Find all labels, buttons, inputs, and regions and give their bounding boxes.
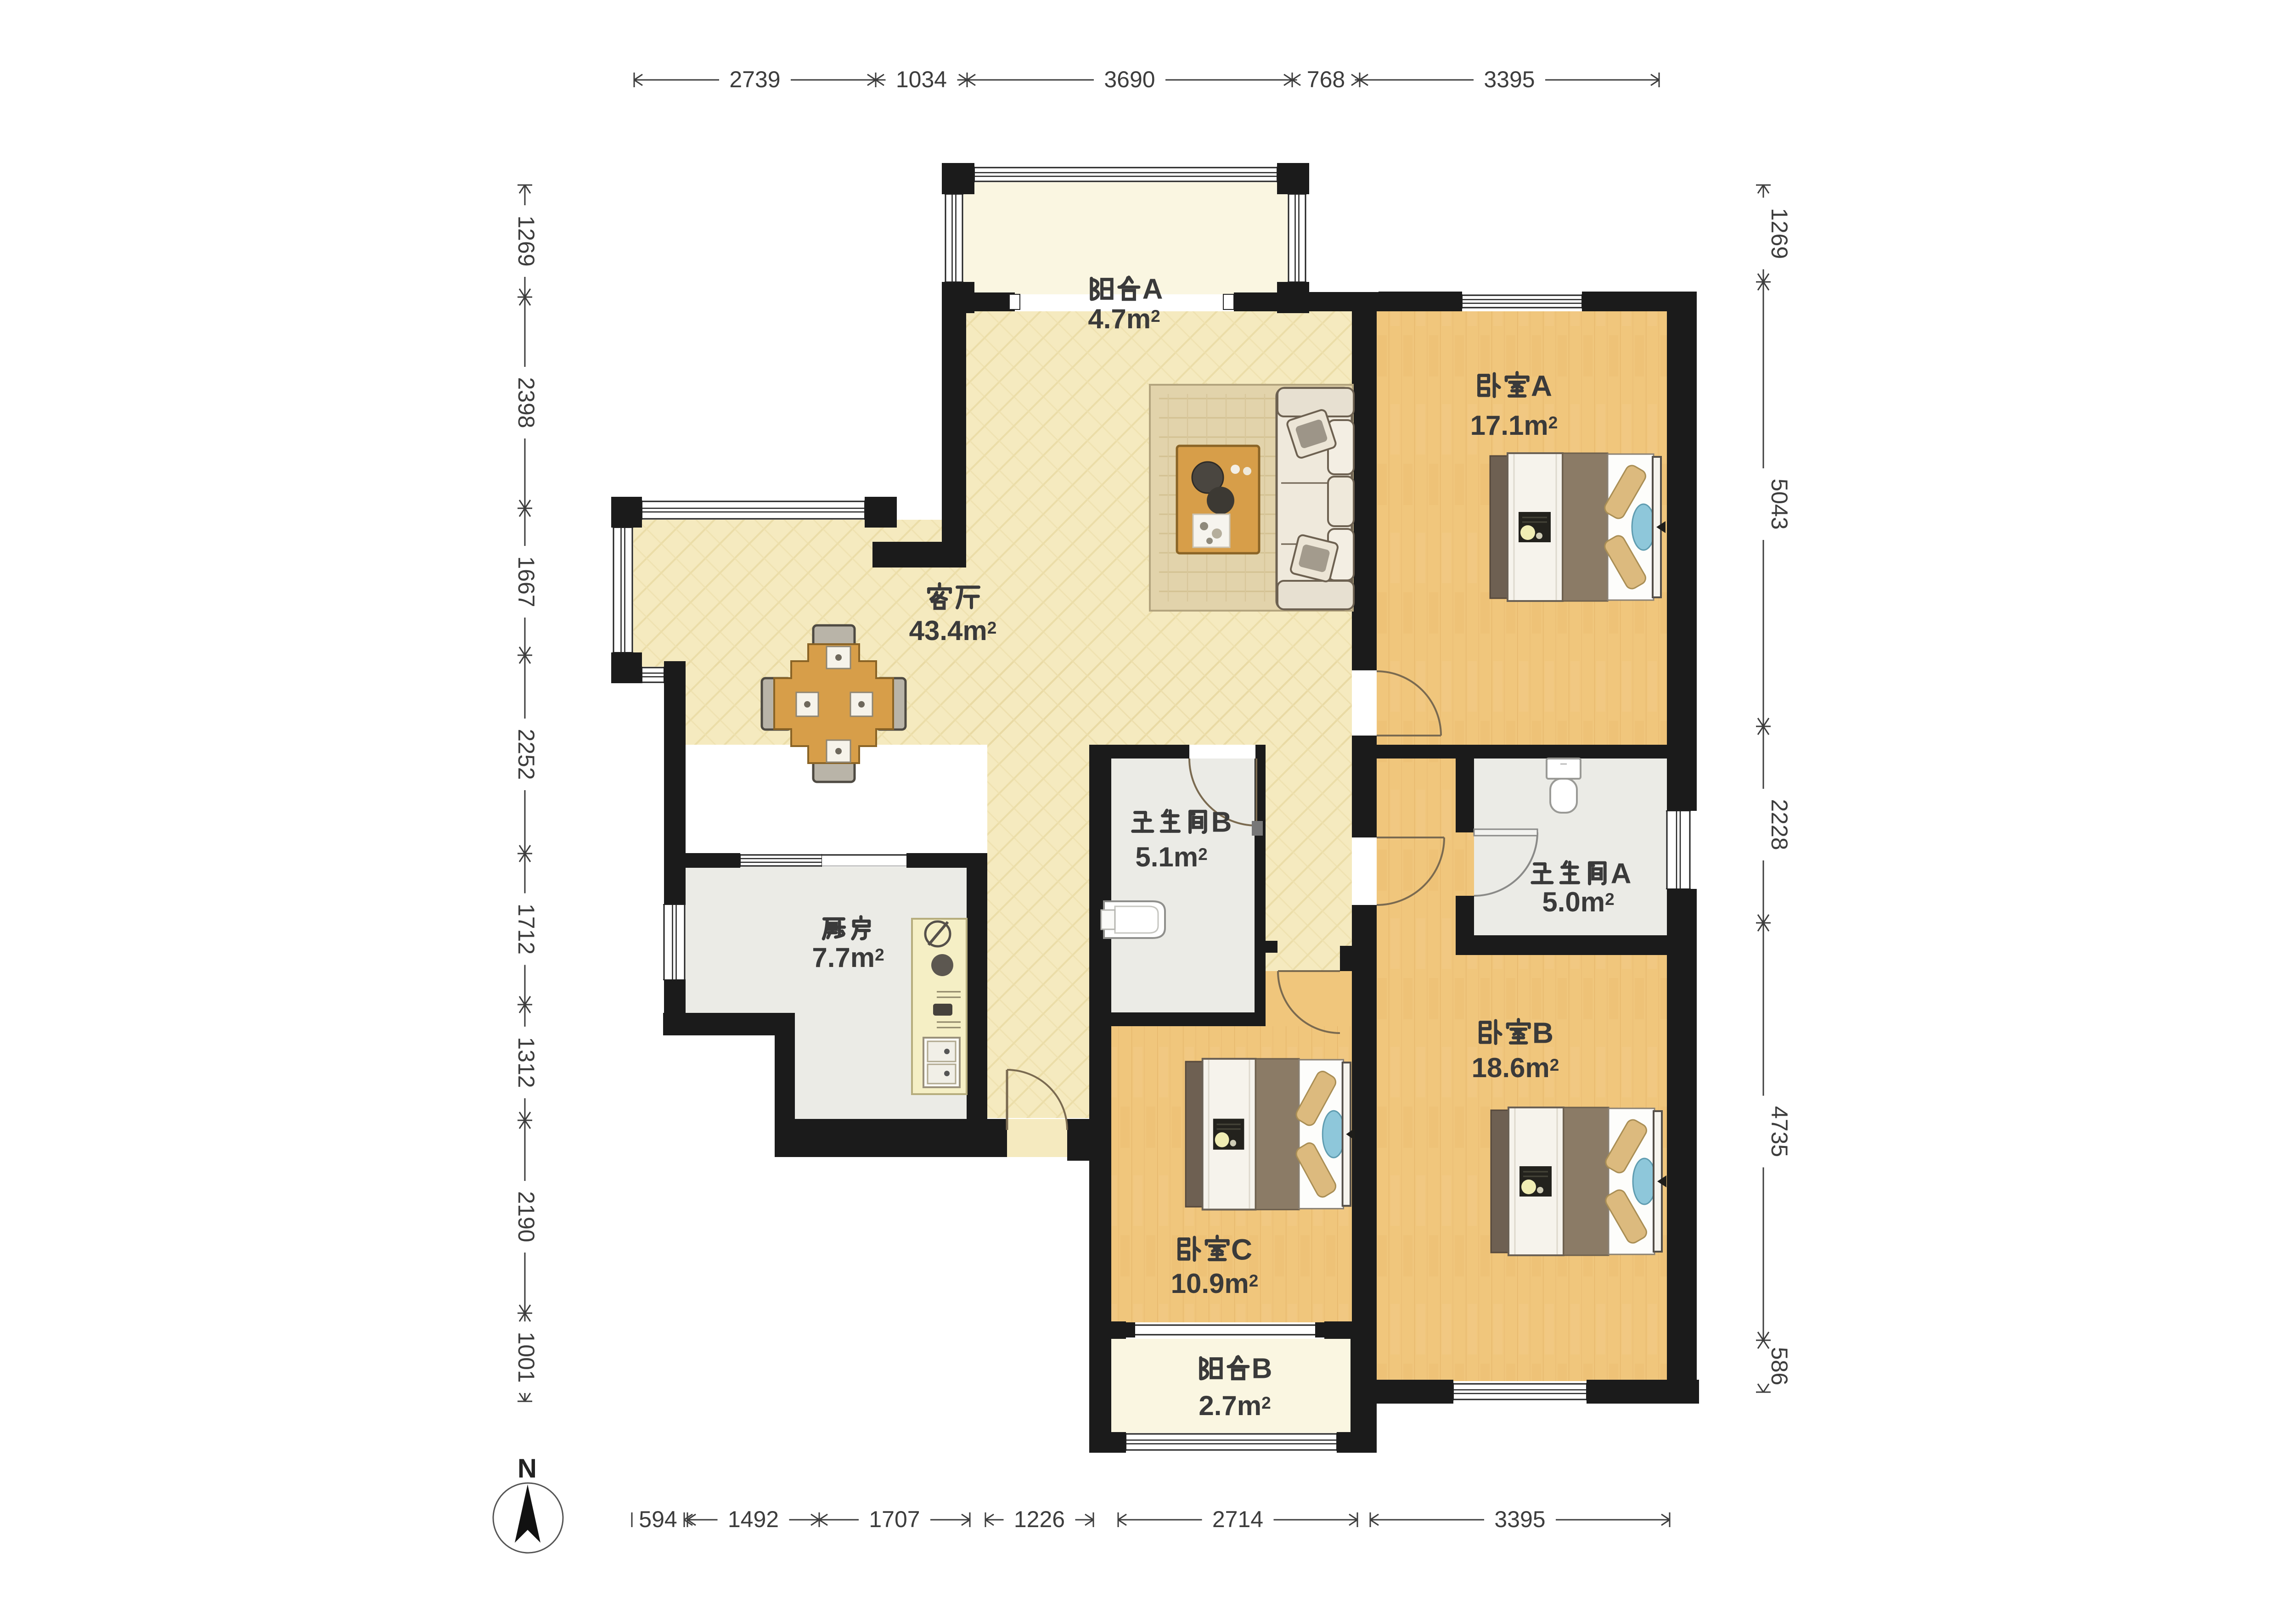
svg-text:4.7m2: 4.7m2 [1088,303,1160,334]
svg-text:1492: 1492 [728,1506,779,1532]
svg-text:4735: 4735 [1767,1106,1792,1157]
svg-text:2228: 2228 [1767,799,1792,850]
svg-text:2398: 2398 [513,377,539,428]
svg-text:18.6m2: 18.6m2 [1472,1052,1559,1083]
svg-text:1001: 1001 [513,1332,539,1382]
svg-text:3395: 3395 [1494,1506,1545,1532]
svg-text:1712: 1712 [513,904,539,955]
svg-text:1034: 1034 [896,67,947,92]
svg-text:594: 594 [639,1506,677,1532]
svg-text:1226: 1226 [1014,1506,1065,1532]
svg-text:2190: 2190 [513,1191,539,1242]
svg-text:2739: 2739 [729,67,780,92]
svg-text:1707: 1707 [869,1506,920,1532]
svg-text:3395: 3395 [1484,67,1535,92]
svg-text:586: 586 [1767,1347,1792,1385]
svg-text:1312: 1312 [513,1037,539,1088]
svg-text:17.1m2: 17.1m2 [1470,410,1558,441]
svg-text:1667: 1667 [513,556,539,607]
svg-text:2714: 2714 [1212,1506,1263,1532]
svg-text:B: B [1532,1016,1553,1049]
svg-text:A: A [1531,369,1552,402]
svg-text:5043: 5043 [1767,478,1792,529]
svg-text:B: B [1252,1353,1272,1385]
svg-text:1269: 1269 [1767,208,1792,259]
svg-text:3690: 3690 [1104,67,1155,92]
svg-text:1269: 1269 [513,215,539,266]
svg-text:5.0m2: 5.0m2 [1542,887,1614,917]
svg-text:A: A [1611,858,1632,890]
svg-text:768: 768 [1307,67,1345,92]
svg-text:N: N [518,1454,537,1483]
svg-text:B: B [1211,807,1232,838]
svg-text:2252: 2252 [513,729,539,780]
svg-text:43.4m2: 43.4m2 [909,615,997,646]
svg-text:C: C [1231,1233,1252,1266]
svg-text:A: A [1142,274,1163,305]
svg-text:7.7m2: 7.7m2 [812,942,884,973]
svg-text:5.1m2: 5.1m2 [1135,842,1207,872]
svg-text:10.9m2: 10.9m2 [1171,1268,1259,1299]
svg-text:2.7m2: 2.7m2 [1199,1390,1271,1421]
